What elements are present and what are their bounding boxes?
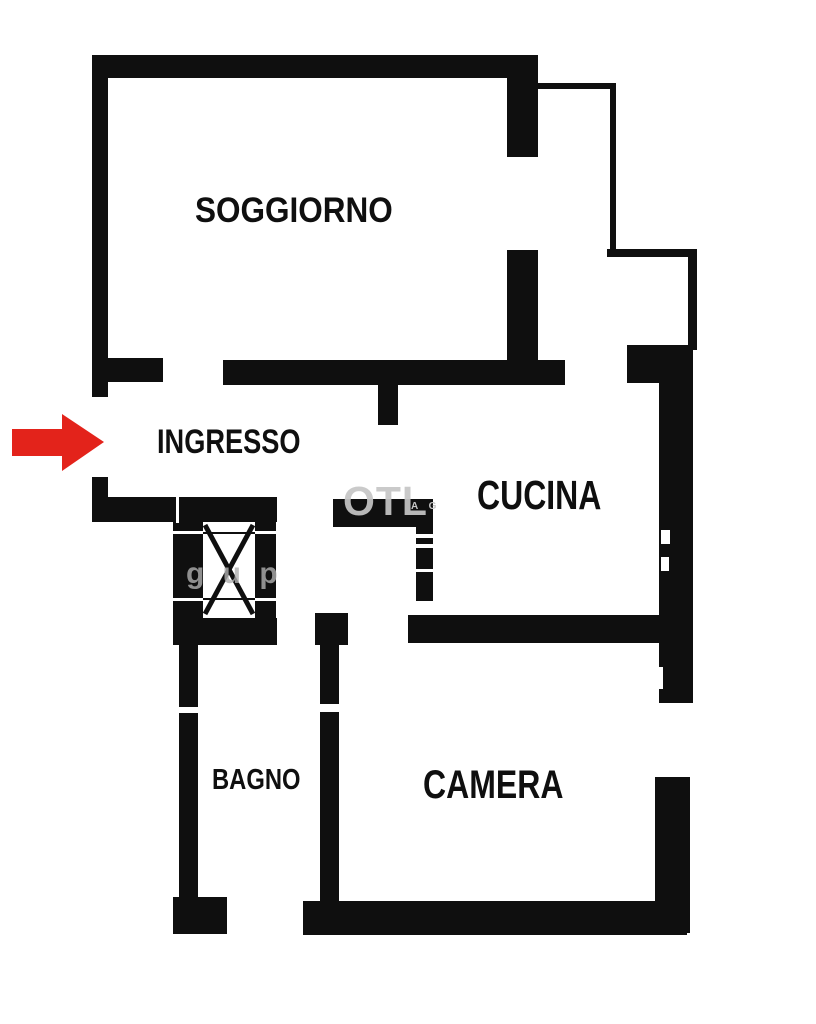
- wall-cucina-top-right-block: [627, 345, 663, 383]
- wall-left-upper: [92, 55, 108, 397]
- jamb-cucina-door-3: [414, 569, 435, 572]
- wall-mid: [320, 640, 339, 907]
- notch-right-wall-3: [655, 667, 663, 689]
- wall-soggiorno-right-lower: [507, 250, 538, 362]
- wall-top: [92, 55, 538, 78]
- wall-soggiorno-right-upper: [507, 55, 538, 157]
- notch-right-wall-2: [661, 557, 669, 571]
- room-label-ingresso: INGRESSO: [157, 425, 301, 459]
- jamb-cucina-door-2: [414, 544, 435, 548]
- jamb-shaft-right-lower: [255, 598, 276, 601]
- break-mid-wall: [316, 704, 342, 712]
- watermark-agency-letters: A G: [411, 501, 440, 512]
- jamb-cucina-door-1: [414, 534, 435, 538]
- wall-bagno-left: [179, 645, 198, 903]
- jamb-shaft-right-upper: [255, 531, 276, 534]
- entrance-arrow-icon: [12, 414, 104, 471]
- terrace-line-middle: [607, 249, 697, 257]
- jamb-shaft-left-lower: [173, 598, 203, 601]
- room-label-soggiorno: SOGGIORNO: [195, 193, 393, 228]
- terrace-line-right-lower: [688, 249, 697, 350]
- room-label-cucina: CUCINA: [477, 475, 601, 516]
- jamb-shaft-left-upper: [173, 531, 203, 534]
- break-bagno-left-wall: [177, 707, 200, 713]
- room-label-camera: CAMERA: [423, 765, 563, 805]
- floor-plan-canvas: SOGGIORNO INGRESSO CUCINA BAGNO CAMERA O…: [0, 0, 816, 1024]
- wall-camera-bottom: [303, 901, 687, 935]
- wall-soggiorno-bottom-left: [92, 358, 163, 382]
- wall-ingresso-cucina-stub: [378, 378, 398, 425]
- notch-right-wall-1: [661, 530, 670, 544]
- wall-bagno-top: [188, 618, 277, 645]
- room-label-bagno: BAGNO: [212, 766, 301, 795]
- wall-ingresso-bottom: [92, 497, 277, 522]
- terrace-line-right-upper: [610, 83, 616, 257]
- jamb-ingresso-bottom: [176, 497, 179, 523]
- terrace-line-top: [537, 83, 616, 89]
- wall-cucina-bottom: [408, 615, 663, 643]
- wall-bagno-bottom-block: [173, 897, 227, 934]
- watermark-shaft-letters: g u p: [186, 557, 283, 591]
- wall-right-upper: [659, 345, 693, 703]
